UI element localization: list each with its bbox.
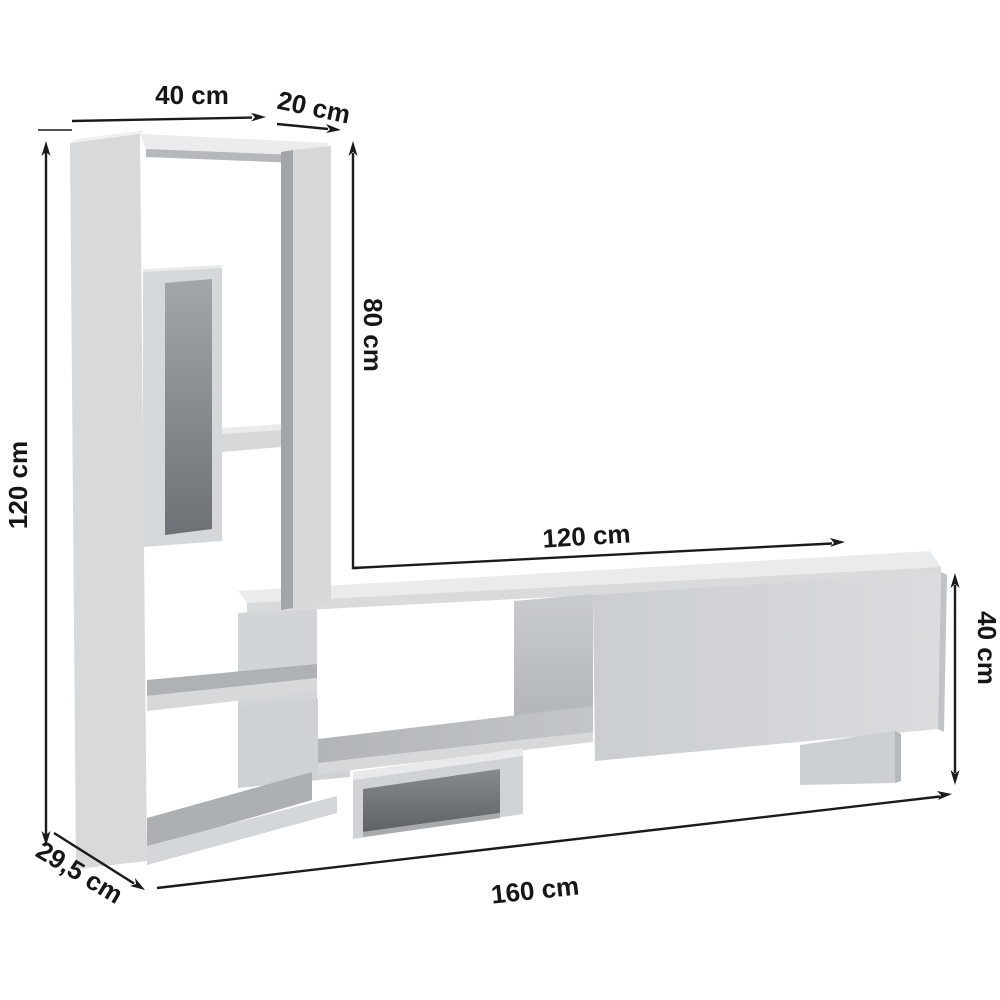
furniture-dimension-drawing: 40 cm 20 cm 80 cm 120 cm 120 cm [0,0,1000,1000]
technical-drawing-page: 40 cm 20 cm 80 cm 120 cm 120 cm [0,0,1000,1000]
dim-line-40-top [72,118,252,121]
dim-label-20-top: 20 cm [275,85,353,130]
dim-column-top-width: 40 cm [38,80,266,130]
dim-line-20-top [277,124,328,129]
dim-label-80: 80 cm [358,298,388,372]
dim-label-40-right: 40 cm [972,611,1000,685]
dim-label-120-left: 120 cm [3,441,33,529]
bench-foot-side [895,731,901,783]
dim-column-top-depth: 20 cm [275,85,353,133]
column-left-panel [70,134,147,869]
column-right-panel [293,146,331,608]
dim-label-120-bench: 120 cm [542,518,632,553]
dim-label-40-top: 40 cm [155,80,229,110]
dim-upper-height: 80 cm [349,141,389,568]
dim-bench-height: 40 cm [951,573,1000,785]
arrowhead-right-icon [251,113,266,122]
dim-label-160: 160 cm [490,871,581,910]
dim-total-height: 120 cm [3,141,51,846]
tv-bench [238,551,947,839]
arrowhead-down-right-icon [130,878,145,890]
inner-box-interior [165,279,212,535]
arrowhead-right-icon [830,538,845,547]
column-right-panel-inner [281,150,293,610]
dim-line-80 [353,153,358,568]
